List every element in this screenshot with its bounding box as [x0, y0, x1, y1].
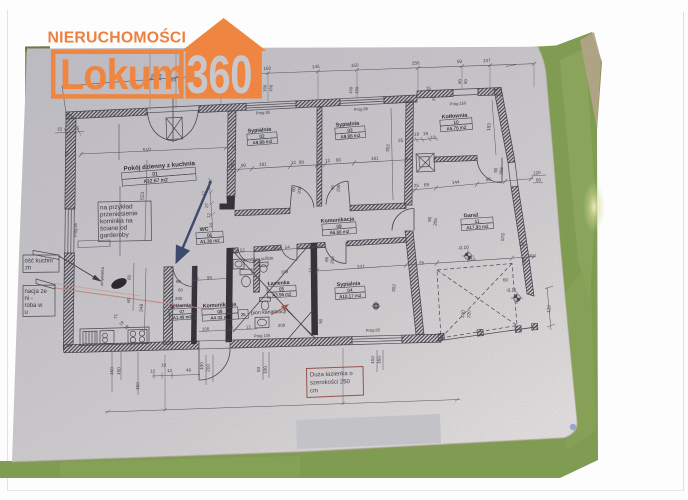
svg-text:210: 210	[206, 364, 211, 372]
svg-text:145: 145	[312, 64, 320, 70]
svg-text:100: 100	[202, 326, 210, 331]
svg-text:337: 337	[357, 264, 365, 270]
svg-text:523: 523	[140, 191, 147, 200]
svg-text:25: 25	[241, 312, 247, 317]
svg-text:100: 100	[199, 362, 204, 370]
svg-text:150: 150	[109, 367, 114, 375]
svg-text:11: 11	[474, 219, 480, 224]
svg-text:150: 150	[268, 84, 274, 92]
svg-text:240: 240	[460, 310, 466, 319]
svg-text:54: 54	[285, 245, 291, 250]
svg-text:12: 12	[231, 144, 237, 149]
svg-text:40: 40	[529, 253, 535, 258]
svg-text:15: 15	[519, 241, 525, 246]
svg-text:302: 302	[391, 284, 397, 293]
svg-text:90: 90	[318, 318, 323, 324]
svg-text:60: 60	[503, 277, 509, 282]
svg-text:25: 25	[414, 183, 420, 188]
svg-text:150: 150	[263, 66, 271, 72]
svg-text:15: 15	[57, 127, 63, 132]
svg-text:150: 150	[116, 367, 121, 375]
svg-text:12: 12	[313, 243, 319, 248]
svg-text:garderoby: garderoby	[100, 231, 130, 239]
svg-text:19: 19	[161, 363, 167, 368]
svg-text:ni -: ni -	[25, 296, 33, 302]
svg-text:86: 86	[324, 256, 329, 262]
svg-text:100: 100	[263, 366, 268, 374]
svg-text:25: 25	[261, 246, 267, 251]
svg-text:12: 12	[430, 135, 436, 140]
svg-text:200: 200	[278, 323, 286, 328]
svg-text:80: 80	[176, 279, 181, 284]
svg-text:169: 169	[281, 269, 289, 275]
svg-text:nacja ze: nacja ze	[25, 289, 48, 295]
svg-text:200: 200	[175, 296, 183, 301]
svg-text:183: 183	[486, 123, 492, 132]
svg-text:510: 510	[143, 147, 152, 154]
svg-text:71: 71	[113, 313, 118, 319]
svg-text:150: 150	[135, 382, 140, 390]
svg-text:08: 08	[217, 309, 223, 314]
svg-text:12: 12	[167, 368, 173, 373]
svg-text:12: 12	[325, 158, 331, 163]
svg-text::m: :m	[25, 266, 32, 272]
svg-text:315: 315	[468, 257, 476, 263]
svg-text:Próg 85: Próg 85	[354, 106, 369, 112]
svg-text:07: 07	[179, 309, 185, 314]
svg-text:120: 120	[533, 170, 541, 176]
svg-text:09: 09	[336, 224, 342, 229]
svg-text:578: 578	[500, 233, 506, 242]
svg-text:220: 220	[466, 310, 472, 319]
svg-text:-0.10: -0.10	[458, 245, 470, 252]
svg-text:04: 04	[347, 288, 353, 293]
svg-text:150: 150	[348, 86, 354, 94]
svg-text:150: 150	[262, 84, 268, 92]
svg-text:191: 191	[259, 161, 267, 167]
svg-text:137: 137	[483, 58, 491, 64]
svg-text:90: 90	[299, 159, 305, 164]
svg-text:144: 144	[452, 179, 461, 185]
svg-text:248: 248	[139, 303, 146, 312]
svg-text:205: 205	[433, 218, 439, 227]
svg-text:206: 206	[330, 256, 336, 265]
svg-text:69: 69	[424, 182, 430, 187]
svg-text:Próg 85: Próg 85	[256, 109, 271, 115]
svg-text:06: 06	[207, 233, 213, 238]
svg-text:206: 206	[297, 186, 303, 194]
svg-text:360: 360	[187, 45, 253, 105]
svg-text:-0.11: -0.11	[506, 287, 517, 294]
svg-text:150: 150	[370, 356, 375, 364]
svg-text:191: 191	[371, 155, 379, 161]
svg-text:19: 19	[414, 131, 420, 136]
svg-text:60: 60	[178, 288, 183, 293]
svg-text:206: 206	[499, 167, 505, 176]
svg-text:90: 90	[427, 216, 432, 222]
svg-text:25: 25	[74, 126, 80, 131]
svg-text:160: 160	[377, 356, 382, 364]
svg-text:ość kuchni: ość kuchni	[25, 259, 53, 265]
svg-text:12: 12	[246, 324, 252, 329]
svg-text:90: 90	[273, 245, 279, 250]
svg-text:60: 60	[536, 177, 542, 182]
svg-text:49: 49	[186, 368, 192, 373]
svg-text:u: u	[25, 310, 28, 316]
svg-text:zmywarka: zmywarka	[99, 266, 105, 286]
svg-text:12: 12	[291, 160, 297, 165]
svg-text:90: 90	[493, 167, 498, 173]
svg-text:90: 90	[486, 177, 492, 182]
svg-text:60: 60	[126, 297, 131, 303]
svg-text:Próg 135: Próg 135	[254, 333, 271, 339]
svg-text:03: 03	[347, 128, 353, 133]
svg-text:90: 90	[336, 157, 342, 162]
svg-text:12: 12	[150, 369, 156, 374]
svg-text:12: 12	[228, 163, 234, 168]
svg-text:302: 302	[385, 144, 391, 153]
svg-text:25: 25	[398, 138, 404, 143]
svg-text:05: 05	[279, 286, 285, 291]
svg-text:Lokum: Lokum	[60, 50, 185, 98]
svg-text:150: 150	[351, 62, 359, 68]
svg-text:25: 25	[419, 260, 425, 265]
svg-text:206: 206	[336, 184, 342, 192]
svg-text:90: 90	[241, 163, 247, 168]
svg-text:15: 15	[426, 86, 432, 91]
svg-text:cm: cm	[310, 388, 318, 394]
svg-text:65: 65	[64, 150, 69, 156]
svg-text:Próg 85: Próg 85	[73, 222, 79, 237]
svg-text:60: 60	[256, 366, 261, 372]
svg-text:19: 19	[423, 131, 429, 136]
svg-text:256: 256	[412, 60, 420, 66]
svg-text:02: 02	[259, 134, 265, 139]
svg-text:60: 60	[127, 274, 132, 280]
svg-text:Próg 85: Próg 85	[366, 327, 381, 333]
svg-text:NIERUCHOMOŚCI: NIERUCHOMOŚCI	[48, 28, 187, 47]
svg-text:roba w: roba w	[25, 303, 44, 309]
svg-text:52: 52	[240, 247, 246, 252]
svg-text:102: 102	[318, 244, 326, 250]
svg-text:60: 60	[228, 325, 234, 330]
svg-text:59: 59	[457, 59, 463, 64]
svg-text:10: 10	[453, 120, 459, 125]
svg-text:150: 150	[354, 86, 360, 94]
